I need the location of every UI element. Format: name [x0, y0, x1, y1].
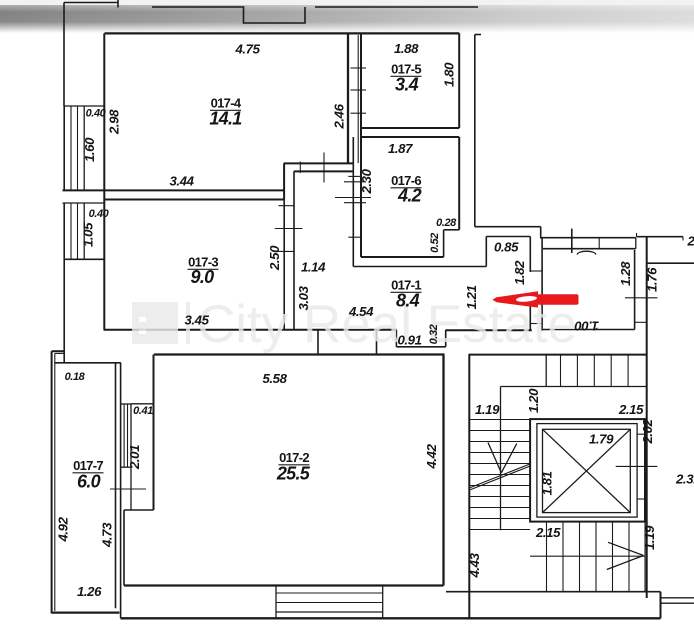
svg-text:0.85: 0.85 — [494, 240, 519, 255]
svg-text:14.1: 14.1 — [209, 109, 242, 129]
svg-text:4.92: 4.92 — [56, 516, 71, 542]
svg-text:8.4: 8.4 — [396, 291, 420, 311]
svg-text:1.82: 1.82 — [512, 260, 527, 285]
svg-text:4.2: 4.2 — [397, 186, 422, 206]
svg-text:4.43: 4.43 — [467, 552, 482, 578]
svg-text:1.19: 1.19 — [642, 525, 657, 550]
svg-text:0.28: 0.28 — [436, 217, 457, 229]
svg-text:1.80: 1.80 — [442, 62, 457, 87]
svg-text:1.20: 1.20 — [526, 388, 541, 413]
svg-text:3.45: 3.45 — [184, 313, 209, 328]
svg-text:1.28: 1.28 — [618, 261, 633, 286]
svg-text:2.98: 2.98 — [107, 109, 122, 135]
svg-text:2: 2 — [687, 234, 694, 249]
svg-text:2.15: 2.15 — [618, 402, 644, 417]
svg-text:4.75: 4.75 — [234, 42, 260, 57]
svg-text:0.40: 0.40 — [86, 108, 107, 120]
svg-text:4.54: 4.54 — [348, 304, 374, 319]
svg-text:1.81: 1.81 — [540, 471, 555, 495]
svg-text:1.87: 1.87 — [388, 141, 413, 156]
svg-text:2.50: 2.50 — [267, 245, 282, 271]
svg-text:9.0: 9.0 — [191, 267, 215, 287]
svg-text:0.91: 0.91 — [397, 333, 421, 348]
svg-text:0.41: 0.41 — [133, 405, 153, 417]
svg-text:1.14: 1.14 — [301, 260, 326, 275]
svg-text:0.18: 0.18 — [65, 371, 86, 383]
svg-text:4.73: 4.73 — [100, 522, 115, 548]
svg-text:1.26: 1.26 — [77, 584, 102, 599]
svg-text:5.58: 5.58 — [262, 371, 287, 386]
svg-text:1.19: 1.19 — [475, 402, 500, 417]
svg-text:1.60: 1.60 — [82, 137, 97, 162]
svg-text:3.03: 3.03 — [296, 285, 311, 310]
svg-text:4.42: 4.42 — [424, 443, 439, 469]
svg-text:3.44: 3.44 — [169, 174, 194, 189]
svg-text:2.31: 2.31 — [675, 472, 694, 487]
svg-text:2.46: 2.46 — [332, 103, 347, 129]
svg-text:1.05: 1.05 — [81, 222, 96, 247]
svg-text:1.76: 1.76 — [645, 267, 660, 292]
svg-text:3.4: 3.4 — [395, 75, 419, 95]
svg-text:2.30: 2.30 — [359, 168, 374, 194]
svg-text:2.15: 2.15 — [535, 525, 561, 540]
svg-text:2.02: 2.02 — [640, 418, 655, 444]
svg-text:1.21: 1.21 — [464, 285, 479, 309]
svg-text:1.79: 1.79 — [589, 432, 614, 447]
svg-text:1.00: 1.00 — [574, 319, 599, 334]
svg-text:1.88: 1.88 — [394, 41, 419, 56]
svg-text:6.0: 6.0 — [77, 472, 101, 492]
svg-text:2.01: 2.01 — [127, 445, 142, 470]
svg-text:0.52: 0.52 — [429, 233, 441, 253]
svg-text:25.5: 25.5 — [276, 464, 311, 484]
svg-text:0.40: 0.40 — [89, 208, 110, 220]
svg-text:0.32: 0.32 — [428, 324, 440, 344]
